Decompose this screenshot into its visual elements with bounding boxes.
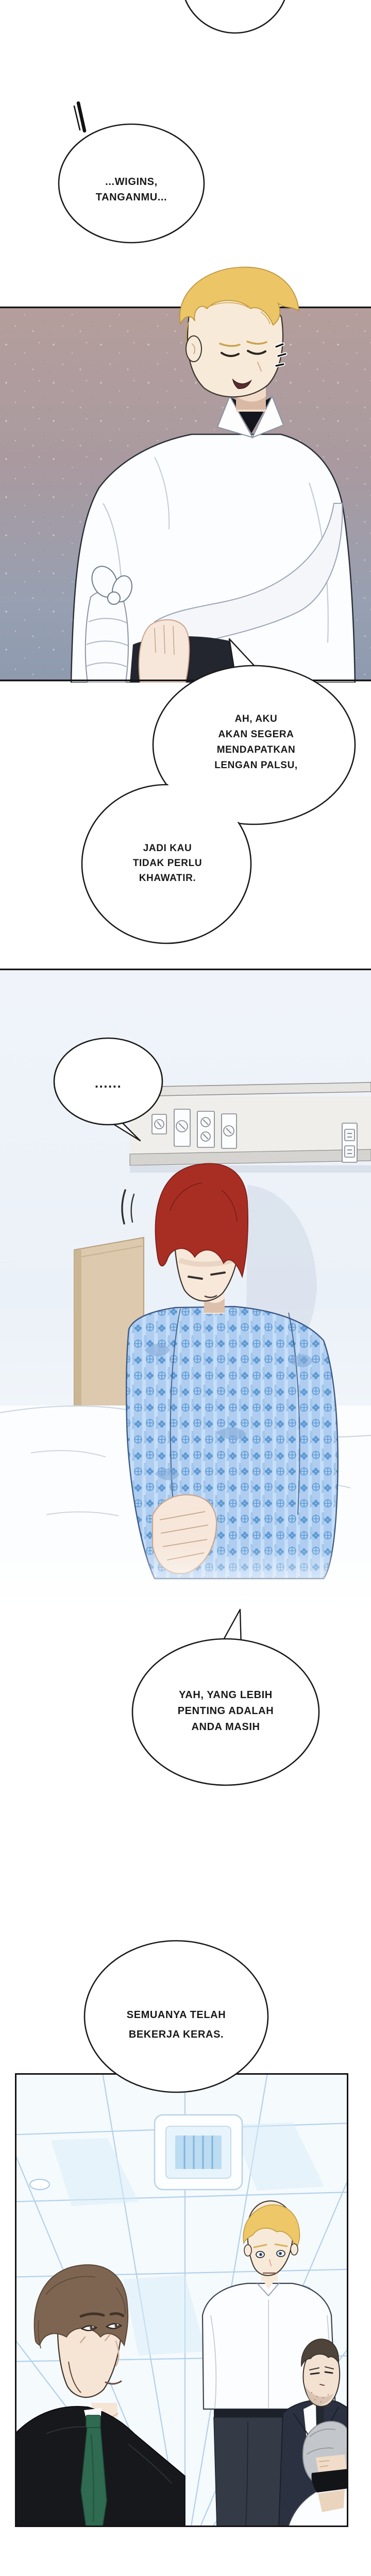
ceiling-ac-unit [155,2115,242,2190]
bubble-text-line: JADI KAU [143,841,192,856]
speech-bubble-wigins: ...WIGINS, TANGANMU... [57,122,206,245]
speech-bubble-silence: ...... [52,1037,165,1147]
panel-top-border [0,969,371,970]
bubble-text-line: ...... [95,1076,122,1090]
bubble-text-line: LENGAN PALSU, [214,758,298,773]
panel-hallway-art [15,2073,348,2527]
bubble-text-line: PENTING ADALAH [178,1703,274,1719]
bubble-text-line: MENDAPATKAN [217,742,296,758]
panel-blond-man-art [0,261,371,683]
bubble-text-line: YAH, YANG LEBIH [179,1687,273,1703]
webtoon-page: HOSPITAL HOSPITAL [0,0,371,2576]
bubble-text-line: BEKERJA KERAS. [129,2025,224,2044]
speech-bubble-opening-partial [174,0,298,36]
bubble-text-line: AKAN SEGERA [218,727,294,742]
bubble-text-line: ...WIGINS, [105,174,158,190]
bubble-text-line: SEMUANYA TELAH [127,2005,226,2025]
bubble-text-line: TANGANMU... [96,190,167,205]
speech-bubble-bekerja-keras: SEMUANYA TELAH BEKERJA KERAS. [81,1938,272,2095]
speech-bubble-yang-penting: YAH, YANG LEBIH PENTING ADALAH ANDA MASI… [129,1605,323,1790]
ceiling-light [30,2179,49,2190]
sunglasses [311,2469,348,2493]
speech-bubble-lengan-palsu-group: AH, AKU AKAN SEGERA MENDAPATKAN LENGAN P… [77,635,366,949]
bubble-text-line: KHAWATIR. [139,871,196,886]
panel-blond-man [0,261,371,683]
bubble-text-lengan-palsu: AH, AKU AKAN SEGERA MENDAPATKAN LENGAN P… [174,710,339,775]
bubble-text-line: TIDAK PERLU [133,856,202,871]
panel-hallway-group [15,2073,348,2527]
bubble-text-khawatir: JADI KAU TIDAK PERLU KHAWATIR. [95,840,240,886]
bubble-text-line: ANDA MASIH [191,1719,260,1735]
bubble-text-line: AH, AKU [235,711,278,727]
